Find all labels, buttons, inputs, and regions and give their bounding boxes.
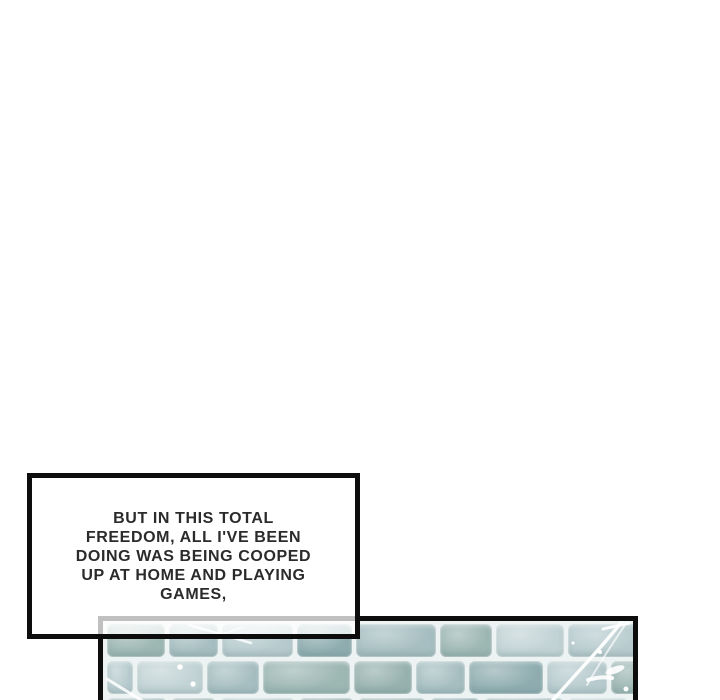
comic-page: BUT IN THIS TOTAL FREEDOM, ALL I'VE BEEN… xyxy=(0,0,720,700)
speech-bubble-line: BUT IN THIS TOTAL xyxy=(113,509,274,528)
speech-bubble: BUT IN THIS TOTAL FREEDOM, ALL I'VE BEEN… xyxy=(27,473,360,639)
speech-bubble-line: DOING WAS BEING COOPED xyxy=(76,547,311,566)
speech-bubble-line: FREEDOM, ALL I'VE BEEN xyxy=(86,528,301,547)
speech-bubble-line: GAMES, xyxy=(160,585,227,604)
speech-bubble-line: UP AT HOME AND PLAYING xyxy=(81,566,305,585)
